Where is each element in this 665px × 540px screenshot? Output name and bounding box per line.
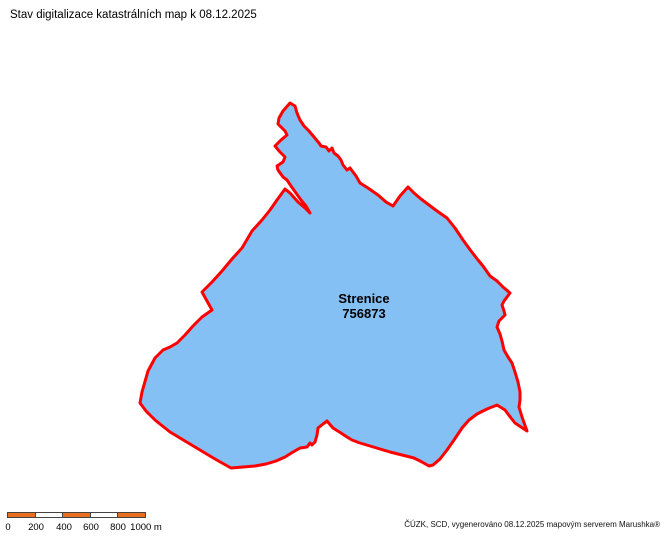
scalebar-segment xyxy=(35,512,64,518)
scalebar-segment xyxy=(7,512,36,518)
scalebar-segment xyxy=(90,512,119,518)
cadastral-area-label: Strenice 756873 xyxy=(338,291,389,321)
scalebar-labels: 02004006008001000 m xyxy=(7,522,167,534)
scalebar-label: 0 xyxy=(5,522,10,533)
scalebar-label: 800 xyxy=(110,522,126,533)
map-canvas[interactable]: Stav digitalizace katastrálních map k 08… xyxy=(0,0,665,540)
map-attribution: ČÚZK, SCD, vygenerováno 08.12.2025 mapov… xyxy=(404,520,660,529)
cadastral-area-name: Strenice xyxy=(338,291,389,306)
scalebar-label: 400 xyxy=(56,522,72,533)
scalebar-segments xyxy=(7,512,146,518)
scalebar-label: 1000 m xyxy=(130,522,162,533)
cadastral-area-code: 756873 xyxy=(338,306,389,321)
scalebar-label: 200 xyxy=(28,522,44,533)
scalebar-label: 600 xyxy=(83,522,99,533)
scalebar-segment xyxy=(62,512,91,518)
scalebar-segment xyxy=(117,512,146,518)
map-svg xyxy=(0,0,665,540)
cadastral-area-polygon[interactable] xyxy=(140,103,527,468)
